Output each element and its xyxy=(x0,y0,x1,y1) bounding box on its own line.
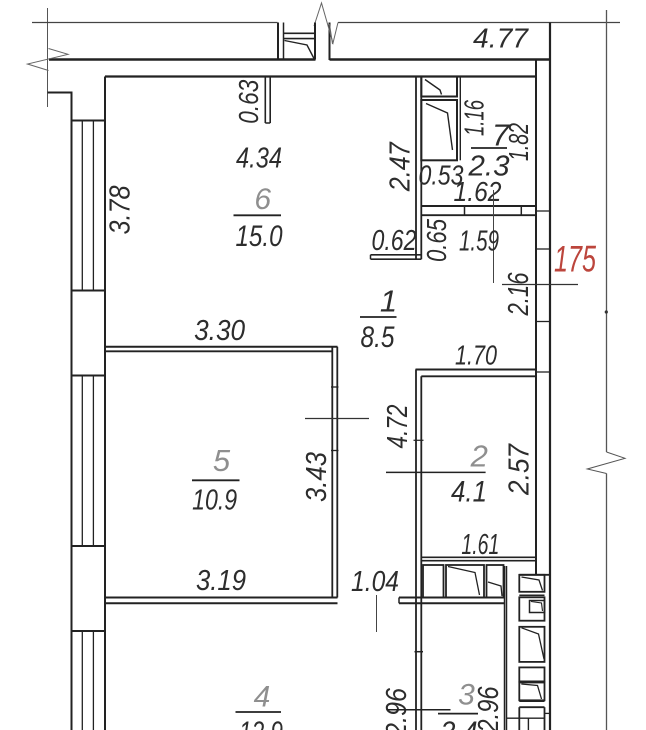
svg-text:10.9: 10.9 xyxy=(192,485,237,517)
svg-text:1.04: 1.04 xyxy=(351,566,399,598)
svg-text:2.47: 2.47 xyxy=(385,141,417,192)
svg-text:6: 6 xyxy=(254,183,271,216)
svg-text:2.96: 2.96 xyxy=(473,686,505,730)
svg-text:2.16: 2.16 xyxy=(503,272,535,316)
svg-text:1.16: 1.16 xyxy=(459,100,490,136)
svg-text:3.4: 3.4 xyxy=(441,716,478,730)
svg-text:1.62: 1.62 xyxy=(454,176,502,207)
svg-text:2.96: 2.96 xyxy=(381,687,413,730)
svg-text:8.5: 8.5 xyxy=(361,321,395,354)
svg-text:1.59: 1.59 xyxy=(459,226,499,258)
svg-text:1: 1 xyxy=(380,284,397,319)
svg-text:4.34: 4.34 xyxy=(236,143,282,175)
svg-text:3.78: 3.78 xyxy=(105,186,137,235)
svg-text:4.1: 4.1 xyxy=(451,476,487,509)
svg-text:1.70: 1.70 xyxy=(455,339,497,370)
svg-text:4: 4 xyxy=(254,681,271,714)
svg-text:15.0: 15.0 xyxy=(236,220,283,253)
svg-text:4.77: 4.77 xyxy=(473,23,529,54)
svg-text:0.63: 0.63 xyxy=(233,79,264,123)
svg-text:5: 5 xyxy=(213,443,231,478)
svg-text:2.57: 2.57 xyxy=(504,442,536,496)
svg-text:12.9: 12.9 xyxy=(239,716,283,730)
svg-text:3.43: 3.43 xyxy=(301,452,333,502)
svg-text:3.19: 3.19 xyxy=(196,565,246,597)
svg-text:175: 175 xyxy=(554,239,596,280)
svg-text:0.65: 0.65 xyxy=(421,219,452,262)
svg-text:4.72: 4.72 xyxy=(382,405,414,449)
svg-text:1.61: 1.61 xyxy=(461,529,499,561)
svg-text:2: 2 xyxy=(470,439,488,474)
svg-text:0.62: 0.62 xyxy=(372,225,417,257)
svg-text:3.30: 3.30 xyxy=(194,315,245,347)
